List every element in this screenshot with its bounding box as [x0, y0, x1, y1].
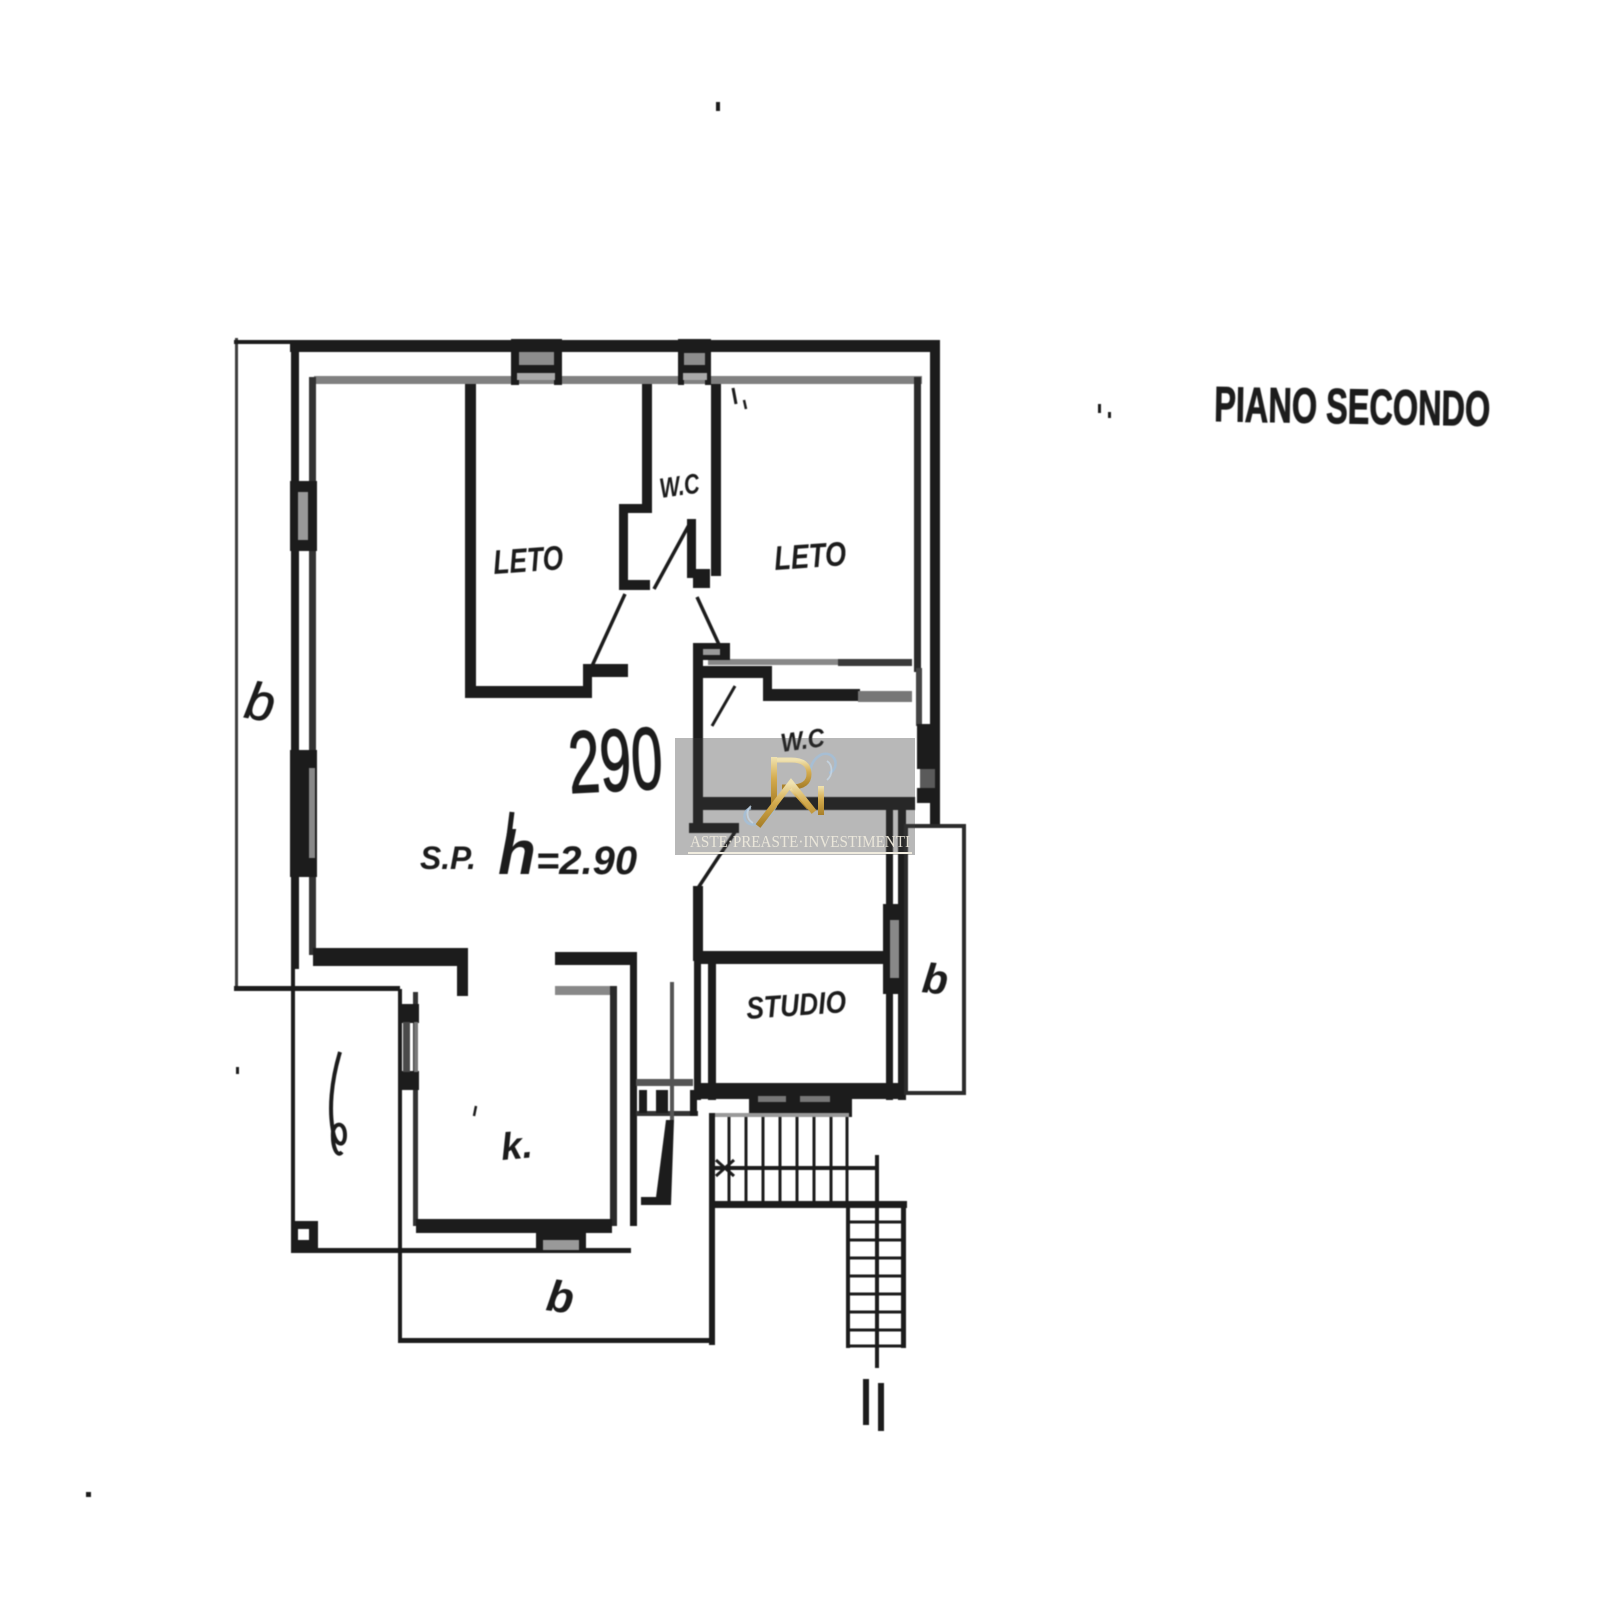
svg-text:S.P.: S.P.	[420, 840, 476, 876]
svg-text:STUDIO: STUDIO	[745, 984, 847, 1026]
svg-text:k.: k.	[499, 1124, 534, 1169]
svg-text:LETO: LETO	[492, 539, 564, 582]
svg-text:ASTE·PREASTE·INVESTIMENTI: ASTE·PREASTE·INVESTIMENTI	[690, 832, 910, 851]
svg-text:290: 290	[566, 708, 665, 812]
svg-text:b: b	[920, 954, 950, 1003]
svg-text:W.C: W.C	[658, 468, 703, 504]
svg-text:LETO: LETO	[773, 535, 847, 578]
svg-text:PIANO SECONDO: PIANO SECONDO	[1214, 378, 1491, 437]
